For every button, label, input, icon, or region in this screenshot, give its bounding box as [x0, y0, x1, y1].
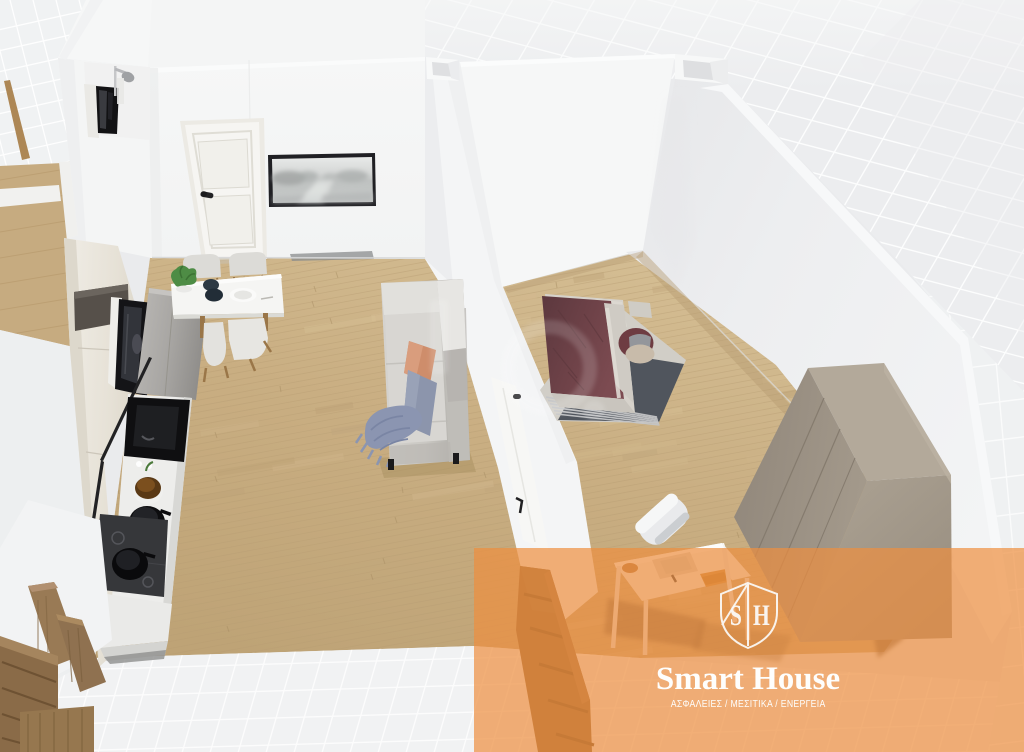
svg-text:H: H [753, 599, 770, 632]
svg-text:S: S [730, 599, 742, 632]
svg-text:Smart House: Smart House [656, 661, 840, 697]
svg-text:ΑΣΦΑΛΕΙΕΣ / ΜΕΣΙΤΙΚΑ / ΕΝΕ: ΑΣΦΑΛΕΙΕΣ / ΜΕΣΙΤΙΚΑ / ΕΝΕΡΓΕΙΑ [671, 698, 826, 709]
